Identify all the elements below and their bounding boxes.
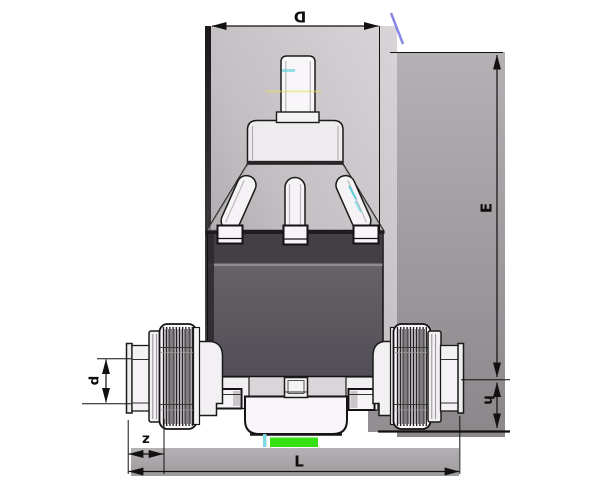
cap-bottom-edge [247,161,344,164]
yellow-artifact-streak [266,91,321,93]
bonnet-cap [247,121,344,164]
leg-foot-left [218,226,243,244]
cyan-artifact-tick [263,434,267,447]
nut-collar-right [428,331,441,422]
green-artifact-bar [270,438,318,448]
base-foot-right [349,389,375,410]
dim-label-z: z [142,432,150,448]
leg-foot-right [354,226,379,244]
dim-label-d: d [87,376,103,386]
leg-foot-center [284,226,308,245]
cap-outline [248,121,344,164]
nut-end-left [194,328,200,425]
dim-label-E: E [478,203,496,213]
valve-dimension-drawing: D E d h z L [0,0,608,488]
base-boss [245,397,347,435]
valve-base [213,377,379,435]
teal-artifact-dash [282,69,295,72]
dim-label-D: D [294,8,306,26]
union-nut-left [127,324,200,429]
dim-label-h: h [481,395,497,405]
valve-body [208,233,384,377]
pipe-end-ring-left [127,344,133,414]
pipe-socket-left [132,346,150,412]
pipe-socket-right [441,346,459,412]
body-joint-line [208,264,383,267]
bonnet-legs [218,173,379,245]
dim-label-L: L [294,453,304,471]
pipe-end-ring-right [458,344,464,414]
stem-collar [277,112,320,123]
handwheel-stem [277,56,320,123]
drawing-canvas: D E d h z L [0,0,608,488]
